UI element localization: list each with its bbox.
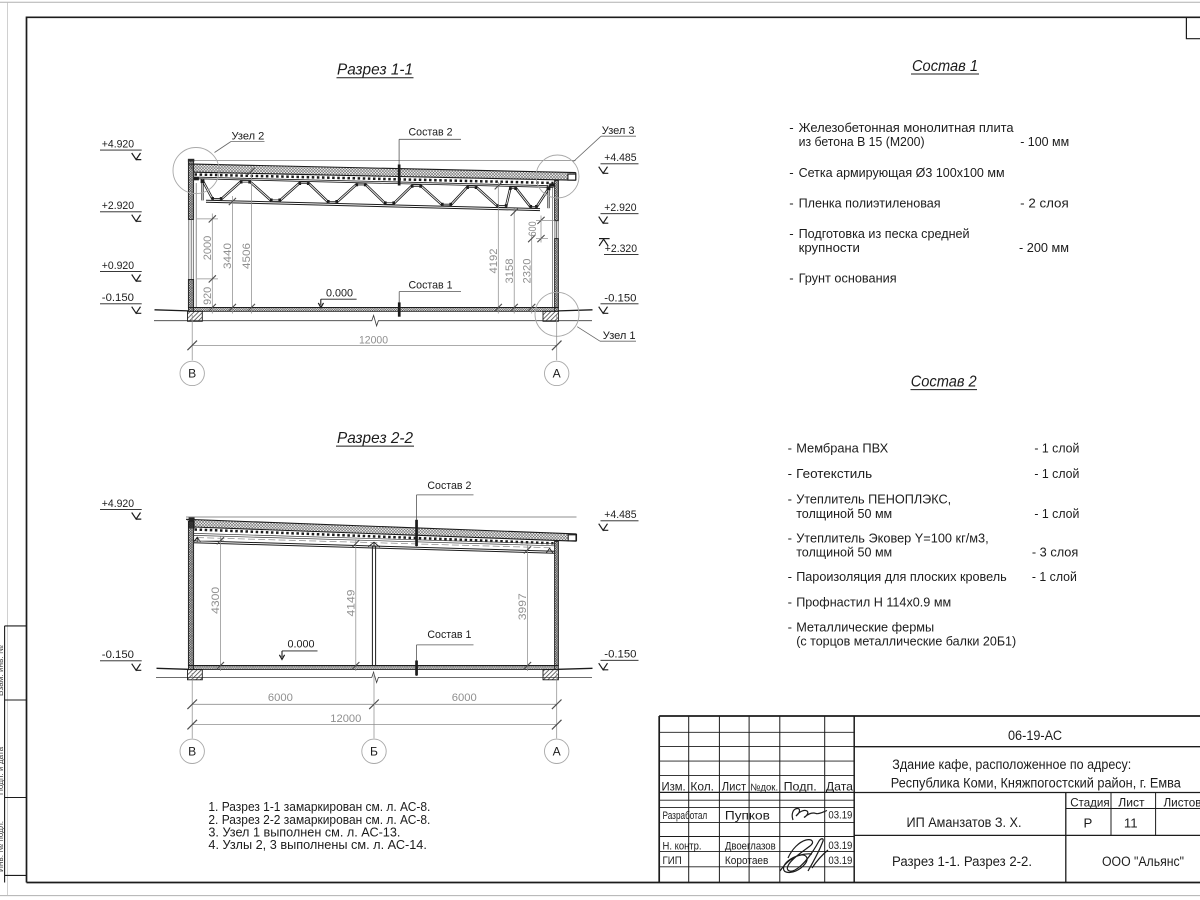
svg-text:Геотекстиль: Геотекстиль: [796, 466, 872, 481]
svg-text:920: 920: [202, 287, 214, 305]
svg-text:Республика Коми, Княжпогостски: Республика Коми, Княжпогостский район, г…: [891, 775, 1182, 790]
svg-text:-: -: [788, 620, 792, 635]
svg-text:- 1 слой: - 1 слой: [1034, 441, 1079, 456]
svg-text:Разрез 2-2: Разрез 2-2: [337, 430, 413, 447]
svg-text:Металлические фермы: Металлические фермы: [796, 620, 934, 635]
svg-text:2000: 2000: [202, 236, 214, 261]
svg-text:Состав 1: Состав 1: [427, 629, 471, 641]
svg-text:12000: 12000: [330, 713, 361, 725]
svg-text:600: 600: [527, 221, 539, 236]
svg-text:3997: 3997: [517, 593, 529, 620]
svg-text:крупности: крупности: [799, 240, 860, 255]
svg-text:№док.: №док.: [750, 782, 778, 793]
svg-text:ИП Аманзатов З. Х.: ИП Аманзатов З. Х.: [907, 815, 1022, 830]
svg-text:06-19-АС: 06-19-АС: [1008, 728, 1062, 743]
svg-text:Взам. инв. №: Взам. инв. №: [0, 645, 5, 696]
svg-text:- 1 слой: - 1 слой: [1032, 569, 1077, 584]
svg-text:толщиной 50 мм: толщиной 50 мм: [796, 545, 892, 560]
svg-text:-: -: [789, 271, 793, 286]
svg-text:Инв. № подл.: Инв. № подл.: [0, 821, 5, 872]
svg-text:3158: 3158: [504, 258, 516, 283]
svg-text:Утеплитель ПЕНОПЛЭКС,: Утеплитель ПЕНОПЛЭКС,: [796, 492, 951, 507]
svg-text:- 2 слоя: - 2 слоя: [1020, 196, 1068, 211]
svg-text:Лист: Лист: [1118, 796, 1145, 810]
svg-text:-0.150: -0.150: [604, 292, 636, 304]
svg-text:- 1 слой: - 1 слой: [1034, 466, 1079, 481]
svg-text:Здание кафе, расположенное по: Здание кафе, расположенное по адресу:: [892, 757, 1131, 772]
svg-text:Пупков: Пупков: [725, 808, 770, 822]
svg-text:-0.150: -0.150: [102, 649, 134, 661]
svg-text:Состав 2: Состав 2: [409, 127, 453, 139]
svg-text:Состав 2: Состав 2: [911, 374, 977, 391]
svg-text:-: -: [788, 594, 792, 609]
svg-text:А: А: [553, 367, 562, 381]
svg-text:+2.320: +2.320: [605, 243, 637, 255]
svg-text:Профнастил Н 114х0.9 мм: Профнастил Н 114х0.9 мм: [796, 594, 951, 609]
svg-text:Железобетонная монолитная пли: Железобетонная монолитная плита: [799, 120, 1015, 135]
svg-text:6000: 6000: [268, 692, 293, 704]
svg-text:-: -: [788, 492, 792, 507]
svg-text:Разработал: Разработал: [663, 810, 708, 822]
svg-text:Грунт основания: Грунт основания: [799, 271, 897, 286]
svg-text:+4.920: +4.920: [102, 498, 134, 510]
svg-text:Узел 1: Узел 1: [603, 330, 636, 342]
svg-text:0.000: 0.000: [288, 639, 315, 651]
svg-text:Мембрана ПВХ: Мембрана ПВХ: [796, 441, 888, 456]
svg-text:Изм.: Изм.: [662, 779, 686, 793]
svg-text:-: -: [788, 569, 792, 584]
svg-text:Узел 3: Узел 3: [602, 125, 635, 137]
svg-text:- 200 мм: - 200 мм: [1019, 240, 1069, 255]
svg-text:толщиной 50 мм: толщиной 50 мм: [796, 506, 892, 521]
svg-text:+2.920: +2.920: [604, 202, 636, 214]
svg-text:-: -: [789, 196, 793, 211]
svg-text:Подп. и дата: Подп. и дата: [0, 746, 5, 795]
svg-text:Утеплитель Эковер Y=100 кг/м3,: Утеплитель Эковер Y=100 кг/м3,: [796, 530, 989, 545]
svg-text:Кол.: Кол.: [690, 779, 714, 793]
svg-text:6000: 6000: [452, 692, 477, 704]
svg-text:+2.920: +2.920: [102, 200, 134, 212]
svg-text:Н. контр.: Н. контр.: [663, 841, 702, 853]
svg-text:11: 11: [1124, 816, 1138, 831]
svg-text:-: -: [788, 530, 792, 545]
svg-text:-: -: [789, 165, 793, 180]
svg-text:+0.920: +0.920: [102, 260, 134, 272]
svg-text:3440: 3440: [222, 243, 234, 269]
svg-text:- 100 мм: - 100 мм: [1020, 134, 1069, 149]
svg-text:03.19: 03.19: [828, 840, 852, 852]
svg-text:Состав 2: Состав 2: [427, 480, 471, 492]
svg-text:4192: 4192: [488, 248, 500, 273]
svg-text:Лист: Лист: [722, 779, 747, 793]
svg-text:ГИП: ГИП: [663, 855, 682, 867]
svg-text:из бетона В 15 (М200): из бетона В 15 (М200): [799, 134, 925, 149]
svg-text:12000: 12000: [359, 334, 388, 346]
svg-text:-0.150: -0.150: [604, 649, 636, 661]
svg-text:Пароизоляция для плоских крове: Пароизоляция для плоских кровель: [796, 569, 1007, 584]
svg-text:2320: 2320: [521, 258, 533, 283]
svg-text:0.000: 0.000: [326, 288, 353, 300]
svg-text:Узел 2: Узел 2: [232, 131, 265, 143]
svg-text:Подготовка из песка средней: Подготовка из песка средней: [799, 226, 970, 241]
svg-text:4300: 4300: [210, 587, 222, 614]
svg-text:-0.150: -0.150: [102, 292, 134, 304]
svg-text:-: -: [788, 466, 792, 481]
svg-text:03.19: 03.19: [828, 810, 852, 822]
svg-text:03.19: 03.19: [828, 855, 852, 867]
svg-text:Р: Р: [1084, 816, 1093, 831]
svg-text:Б: Б: [370, 745, 378, 759]
svg-text:-: -: [789, 226, 793, 241]
svg-text:Разрез 1-1: Разрез 1-1: [337, 62, 413, 79]
svg-text:В: В: [188, 367, 196, 381]
svg-text:Пленка полиэтиленовая: Пленка полиэтиленовая: [799, 196, 941, 211]
svg-text:4506: 4506: [241, 243, 253, 269]
svg-text:-: -: [788, 441, 792, 456]
svg-text:Состав 1: Состав 1: [912, 58, 978, 75]
svg-text:-: -: [789, 120, 793, 135]
svg-text:(с торцов металлические балки: (с торцов металлические балки 20Б1): [796, 634, 1016, 649]
svg-text:4149: 4149: [346, 589, 358, 616]
svg-text:- 3 слоя: - 3 слоя: [1032, 545, 1078, 560]
svg-text:Коротаев: Коротаев: [725, 855, 769, 867]
svg-text:Двоеглазов: Двоеглазов: [725, 841, 776, 853]
svg-text:Дата: Дата: [826, 779, 853, 793]
svg-text:+4.920: +4.920: [102, 139, 134, 151]
svg-text:+4.485: +4.485: [604, 509, 636, 521]
svg-text:В: В: [188, 745, 196, 759]
svg-text:Состав 1: Состав 1: [409, 279, 453, 291]
svg-text:Разрез 1-1. Разрез 2-2.: Разрез 1-1. Разрез 2-2.: [892, 854, 1032, 869]
svg-text:А: А: [553, 745, 562, 759]
svg-text:Листов: Листов: [1164, 796, 1200, 810]
svg-text:+4.485: +4.485: [604, 152, 636, 164]
svg-text:- 1 слой: - 1 слой: [1034, 506, 1079, 521]
svg-text:ООО "Альянс": ООО "Альянс": [1102, 854, 1184, 869]
svg-text:Сетка армирующая Ø3 100х100 мм: Сетка армирующая Ø3 100х100 мм: [799, 165, 1005, 180]
svg-text:Стадия: Стадия: [1070, 796, 1109, 810]
svg-text:4. Узлы 2, 3 выполнены см. л.: 4. Узлы 2, 3 выполнены см. л. АС-14.: [208, 837, 427, 852]
svg-text:Подп.: Подп.: [784, 779, 817, 793]
